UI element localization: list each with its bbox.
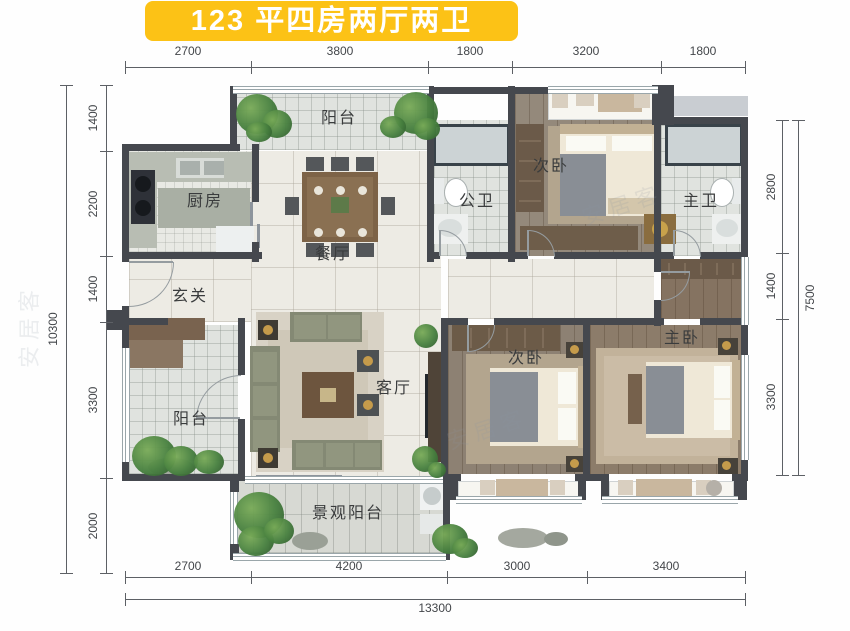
wall (466, 252, 528, 259)
furniture (612, 136, 652, 151)
dim-left-4: 2000 (86, 513, 100, 540)
furniture (558, 408, 576, 440)
furniture (263, 453, 273, 463)
room-label-balcony-view: 景观阳台 (312, 499, 384, 523)
furniture (253, 420, 277, 450)
dimension-line (100, 85, 113, 86)
dim-bottom-0: 2700 (175, 559, 202, 573)
furniture (436, 127, 507, 163)
furniture (722, 461, 731, 470)
dim-bottom-3: 3400 (653, 559, 680, 573)
furniture (519, 180, 541, 182)
furniture (668, 127, 740, 163)
furniture (519, 200, 541, 202)
dim-right-total: 7500 (803, 285, 817, 312)
furniture (519, 140, 541, 142)
dim-right-0: 2800 (764, 174, 778, 201)
plant-icon (414, 118, 440, 140)
furniture (381, 197, 395, 215)
wall (554, 252, 661, 259)
furniture (331, 197, 349, 213)
wall (106, 310, 122, 330)
furniture (714, 400, 730, 430)
wall (640, 318, 664, 325)
furniture (204, 161, 224, 175)
plant-icon (246, 122, 272, 142)
window (741, 355, 749, 460)
dimension-line (745, 61, 746, 74)
furniture (306, 157, 324, 171)
furniture (732, 263, 734, 275)
dimension-line (782, 120, 783, 475)
dimension-line (60, 85, 73, 86)
room-label-kitchen: 厨房 (187, 187, 223, 211)
dim-top-2: 1800 (457, 44, 484, 58)
dimension-line (125, 577, 745, 578)
furniture (558, 372, 576, 404)
room-label-balcony-top: 阳台 (321, 104, 357, 128)
furniture (634, 94, 650, 108)
furniture (292, 532, 328, 550)
furniture (576, 92, 594, 106)
plant-icon (428, 462, 446, 478)
dim-left-2: 1400 (86, 276, 100, 303)
door-leaf (527, 230, 529, 256)
dimension-line (251, 61, 252, 74)
room-label-foyer: 玄关 (172, 282, 208, 306)
dimension-line (251, 571, 252, 584)
furniture (363, 356, 373, 366)
wall (441, 318, 448, 481)
wall (230, 474, 239, 492)
window (602, 496, 738, 504)
wall (252, 144, 259, 202)
wall (583, 318, 590, 481)
plant-icon (264, 518, 294, 544)
window (548, 86, 658, 94)
dim-bottom-2: 3000 (504, 559, 531, 573)
dim-top-0: 2700 (175, 44, 202, 58)
dimension-line (798, 120, 799, 475)
wall (427, 87, 551, 94)
dim-left-3: 3300 (86, 387, 100, 414)
dim-top-3: 3200 (573, 44, 600, 58)
furniture (314, 228, 323, 237)
furniture (216, 226, 254, 253)
furniture (423, 487, 441, 505)
furniture (716, 219, 738, 237)
dim-bottom-total: 13300 (418, 601, 451, 615)
room-label-master-bedroom: 主卧 (664, 324, 700, 348)
furniture (428, 352, 441, 462)
dim-top-1: 3800 (327, 44, 354, 58)
furniture (674, 96, 748, 116)
furniture (570, 345, 579, 354)
furniture (618, 480, 633, 495)
wall (122, 144, 240, 151)
furniture (646, 366, 684, 434)
floor-plan: 123 平四房两厅两卫 阳台 厨房 餐厅 玄关 公卫 次卧 主卫 阳台 客厅 次… (0, 0, 850, 631)
plant-icon (414, 324, 438, 348)
dimension-line (792, 475, 805, 476)
furniture (480, 480, 495, 495)
wall (238, 419, 245, 481)
furniture (129, 340, 183, 368)
dimension-line (100, 478, 113, 479)
dimension-line (587, 571, 588, 584)
furniture (253, 352, 277, 382)
window (741, 257, 749, 325)
furniture (732, 360, 740, 440)
furniture (331, 157, 349, 171)
dim-right-1: 1400 (764, 273, 778, 300)
furniture (314, 186, 323, 195)
dimension-line (745, 571, 746, 584)
furniture (356, 157, 374, 171)
dimension-line (100, 322, 113, 323)
dim-left-total: 10300 (46, 312, 60, 345)
floor (448, 259, 654, 319)
wall (661, 117, 748, 124)
plan-title: 123 平四房两厅两卫 (145, 1, 518, 41)
furniture (570, 459, 579, 468)
furniture (425, 374, 428, 438)
dimension-line (125, 599, 745, 600)
wall (494, 318, 640, 325)
furniture (560, 124, 656, 134)
dimension-line (447, 571, 448, 584)
furniture (285, 197, 299, 215)
dim-left-1: 2200 (86, 191, 100, 218)
dimension-line (661, 61, 662, 74)
plant-icon (164, 446, 198, 476)
wall (741, 325, 748, 355)
furniture (550, 480, 565, 495)
furniture (336, 228, 345, 237)
furniture (294, 315, 326, 339)
furniture (716, 263, 718, 275)
dim-bottom-1: 4200 (336, 559, 363, 573)
dimension-line (106, 85, 107, 573)
furniture (434, 178, 444, 204)
door-leaf (661, 271, 690, 273)
door-leaf (129, 261, 173, 263)
watermark: 安居客 (12, 284, 44, 368)
dimension-line (776, 120, 789, 121)
dimension-line (792, 120, 805, 121)
room-label-dining: 餐厅 (315, 240, 351, 264)
room-label-guest-bath: 公卫 (459, 187, 495, 211)
furniture (253, 386, 277, 416)
dimension-line (125, 61, 126, 74)
furniture (722, 341, 731, 350)
furniture (358, 228, 367, 237)
furniture (336, 186, 345, 195)
wall (238, 318, 245, 375)
plant-icon (380, 116, 406, 138)
window (245, 476, 443, 484)
dim-left-0: 1400 (86, 105, 100, 132)
furniture (714, 366, 730, 398)
furniture (328, 315, 360, 339)
furniture (628, 374, 642, 424)
dim-top-4: 1800 (690, 44, 717, 58)
furniture (135, 176, 151, 192)
furniture (358, 186, 367, 195)
furniture (498, 528, 548, 548)
door-leaf (439, 230, 441, 256)
furniture (566, 136, 606, 151)
plant-icon (452, 538, 478, 558)
furniture (250, 202, 253, 226)
room-label-balcony-side: 阳台 (173, 405, 209, 429)
dimension-line (776, 319, 789, 320)
furniture (544, 532, 568, 546)
room-label-bedroom2: 次卧 (533, 152, 569, 176)
furniture (326, 443, 353, 467)
furniture (706, 480, 722, 496)
room-label-master-bath: 主卫 (683, 187, 719, 211)
door-leaf (467, 325, 469, 352)
furniture (180, 161, 200, 175)
door-leaf (673, 230, 675, 256)
dimension-line (125, 67, 745, 68)
wall (122, 318, 168, 325)
dimension-line (66, 85, 67, 573)
dimension-line (60, 573, 73, 574)
plant-icon (194, 450, 224, 474)
furniture (320, 388, 336, 402)
wall (122, 144, 129, 262)
dimension-line (125, 571, 126, 584)
dimension-line (100, 256, 113, 257)
dimension-line (776, 475, 789, 476)
furniture (356, 243, 374, 257)
wall (122, 306, 129, 348)
furniture (700, 263, 702, 275)
window (122, 348, 130, 462)
furniture (296, 443, 323, 467)
dimension-line (125, 593, 126, 606)
dimension-line (745, 593, 746, 606)
window (233, 86, 429, 94)
furniture (135, 200, 151, 216)
wall (741, 117, 748, 257)
dimension-line (512, 61, 513, 74)
dimension-line (100, 151, 113, 152)
dim-right-2: 3300 (764, 384, 778, 411)
furniture (552, 94, 568, 108)
dimension-line (100, 573, 113, 574)
wall (122, 252, 262, 259)
furniture (363, 400, 373, 410)
room-label-living: 客厅 (376, 374, 412, 398)
wall (508, 86, 515, 262)
dimension-line (428, 61, 429, 74)
furniture (263, 325, 273, 335)
room-label-bedroom3: 次卧 (508, 344, 544, 368)
dimension-line (776, 253, 789, 254)
furniture (355, 443, 380, 467)
window (456, 496, 582, 504)
